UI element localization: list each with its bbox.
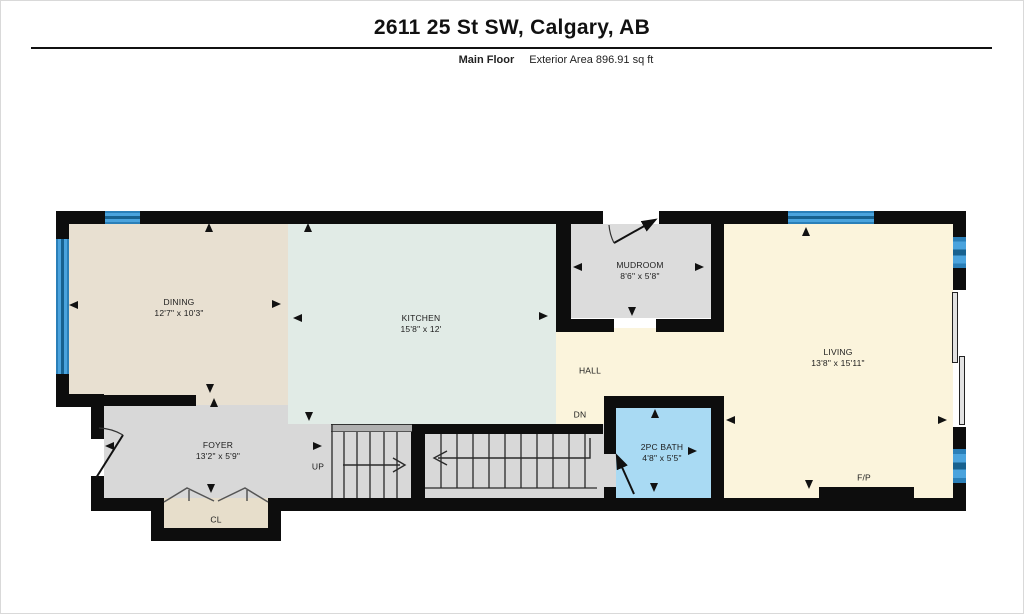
- wall: [104, 395, 196, 406]
- room-name: MUDROOM: [616, 260, 663, 271]
- wall: [281, 498, 966, 511]
- dim-arrow-icon: [938, 416, 947, 424]
- stair-rail: [331, 424, 412, 432]
- wall: [604, 396, 724, 408]
- dim-arrow-icon: [305, 412, 313, 421]
- sliding-door-panel: [952, 292, 958, 363]
- dim-arrow-icon: [272, 300, 281, 308]
- window-icon: [56, 239, 69, 374]
- room-label-mudroom: MUDROOM 8'6" x 5'8": [616, 260, 663, 282]
- window-icon: [953, 237, 966, 268]
- wall: [425, 424, 603, 434]
- floorplan-page: 2611 25 St SW, Calgary, AB Main Floor Ex…: [0, 0, 1024, 614]
- room-name: FOYER: [196, 440, 240, 451]
- room-label-kitchen: KITCHEN 15'8" x 12': [400, 313, 441, 335]
- room-label-hall: HALL: [579, 366, 601, 377]
- room-label-bath: 2PC BATH 4'8" x 5'5": [641, 442, 684, 464]
- stairs-up-area: [331, 424, 411, 498]
- room-dims: 13'2" x 5'9": [196, 451, 240, 462]
- window-icon: [788, 211, 874, 224]
- window-icon: [105, 211, 140, 224]
- dim-arrow-icon: [695, 263, 704, 271]
- room-dims: 12'7" x 10'3": [154, 308, 203, 319]
- dim-arrow-icon: [210, 398, 218, 407]
- fireplace-block: [819, 487, 914, 499]
- dim-arrow-icon: [650, 483, 658, 492]
- room-label-living: LIVING 13'8" x 15'11": [811, 347, 865, 369]
- stairs-down-label: DN: [574, 410, 587, 421]
- room-name: DINING: [154, 297, 203, 308]
- wall: [711, 396, 724, 511]
- fireplace-label: F/P: [857, 473, 871, 484]
- wall: [91, 394, 104, 439]
- dim-arrow-icon: [205, 223, 213, 232]
- dim-arrow-icon: [293, 314, 302, 322]
- wall: [604, 487, 616, 511]
- wall: [711, 211, 724, 332]
- sliding-door-panel: [959, 356, 965, 425]
- wall: [556, 319, 614, 332]
- room-name: LIVING: [811, 347, 865, 358]
- dim-arrow-icon: [69, 301, 78, 309]
- room-dims: 4'8" x 5'5": [641, 453, 684, 464]
- wall: [151, 528, 281, 541]
- dim-arrow-icon: [805, 480, 813, 489]
- room-label-foyer: FOYER 13'2" x 5'9": [196, 440, 240, 462]
- dim-arrow-icon: [313, 442, 322, 450]
- wall: [556, 211, 571, 332]
- wall: [604, 396, 616, 454]
- room-dims: 13'8" x 15'11": [811, 358, 865, 369]
- wall: [268, 498, 281, 541]
- dim-arrow-icon: [628, 307, 636, 316]
- dim-arrow-icon: [726, 416, 735, 424]
- dim-arrow-icon: [206, 384, 214, 393]
- dim-arrow-icon: [539, 312, 548, 320]
- dim-arrow-icon: [802, 227, 810, 236]
- room-name: KITCHEN: [400, 313, 441, 324]
- window-icon: [953, 449, 966, 483]
- closet-label: CL: [210, 515, 221, 526]
- room-dims: 8'6" x 5'8": [616, 271, 663, 282]
- dim-arrow-icon: [207, 484, 215, 493]
- mudroom-door-opening: [603, 211, 659, 224]
- room-name: 2PC BATH: [641, 442, 684, 453]
- floorplan: DINING 12'7" x 10'3" KITCHEN 15'8" x 12'…: [1, 1, 1023, 613]
- room-dims: 15'8" x 12': [400, 324, 441, 335]
- wall: [411, 424, 425, 511]
- room-label-dining: DINING 12'7" x 10'3": [154, 297, 203, 319]
- dim-arrow-icon: [651, 409, 659, 418]
- dim-arrow-icon: [304, 223, 312, 232]
- dim-arrow-icon: [573, 263, 582, 271]
- stairs-down-area: [425, 424, 616, 498]
- dim-arrow-icon: [688, 447, 697, 455]
- dim-arrow-icon: [105, 442, 114, 450]
- stairs-up-label: UP: [312, 462, 324, 473]
